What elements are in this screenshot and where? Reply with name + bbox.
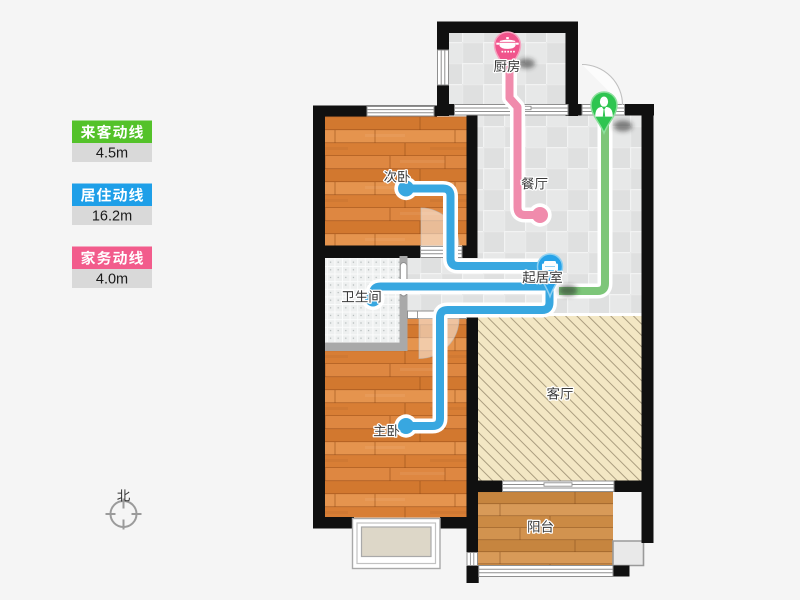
svg-text:4.5m: 4.5m (96, 146, 128, 162)
svg-text:16.2m: 16.2m (92, 209, 132, 225)
svg-text:4.0m: 4.0m (96, 272, 128, 288)
